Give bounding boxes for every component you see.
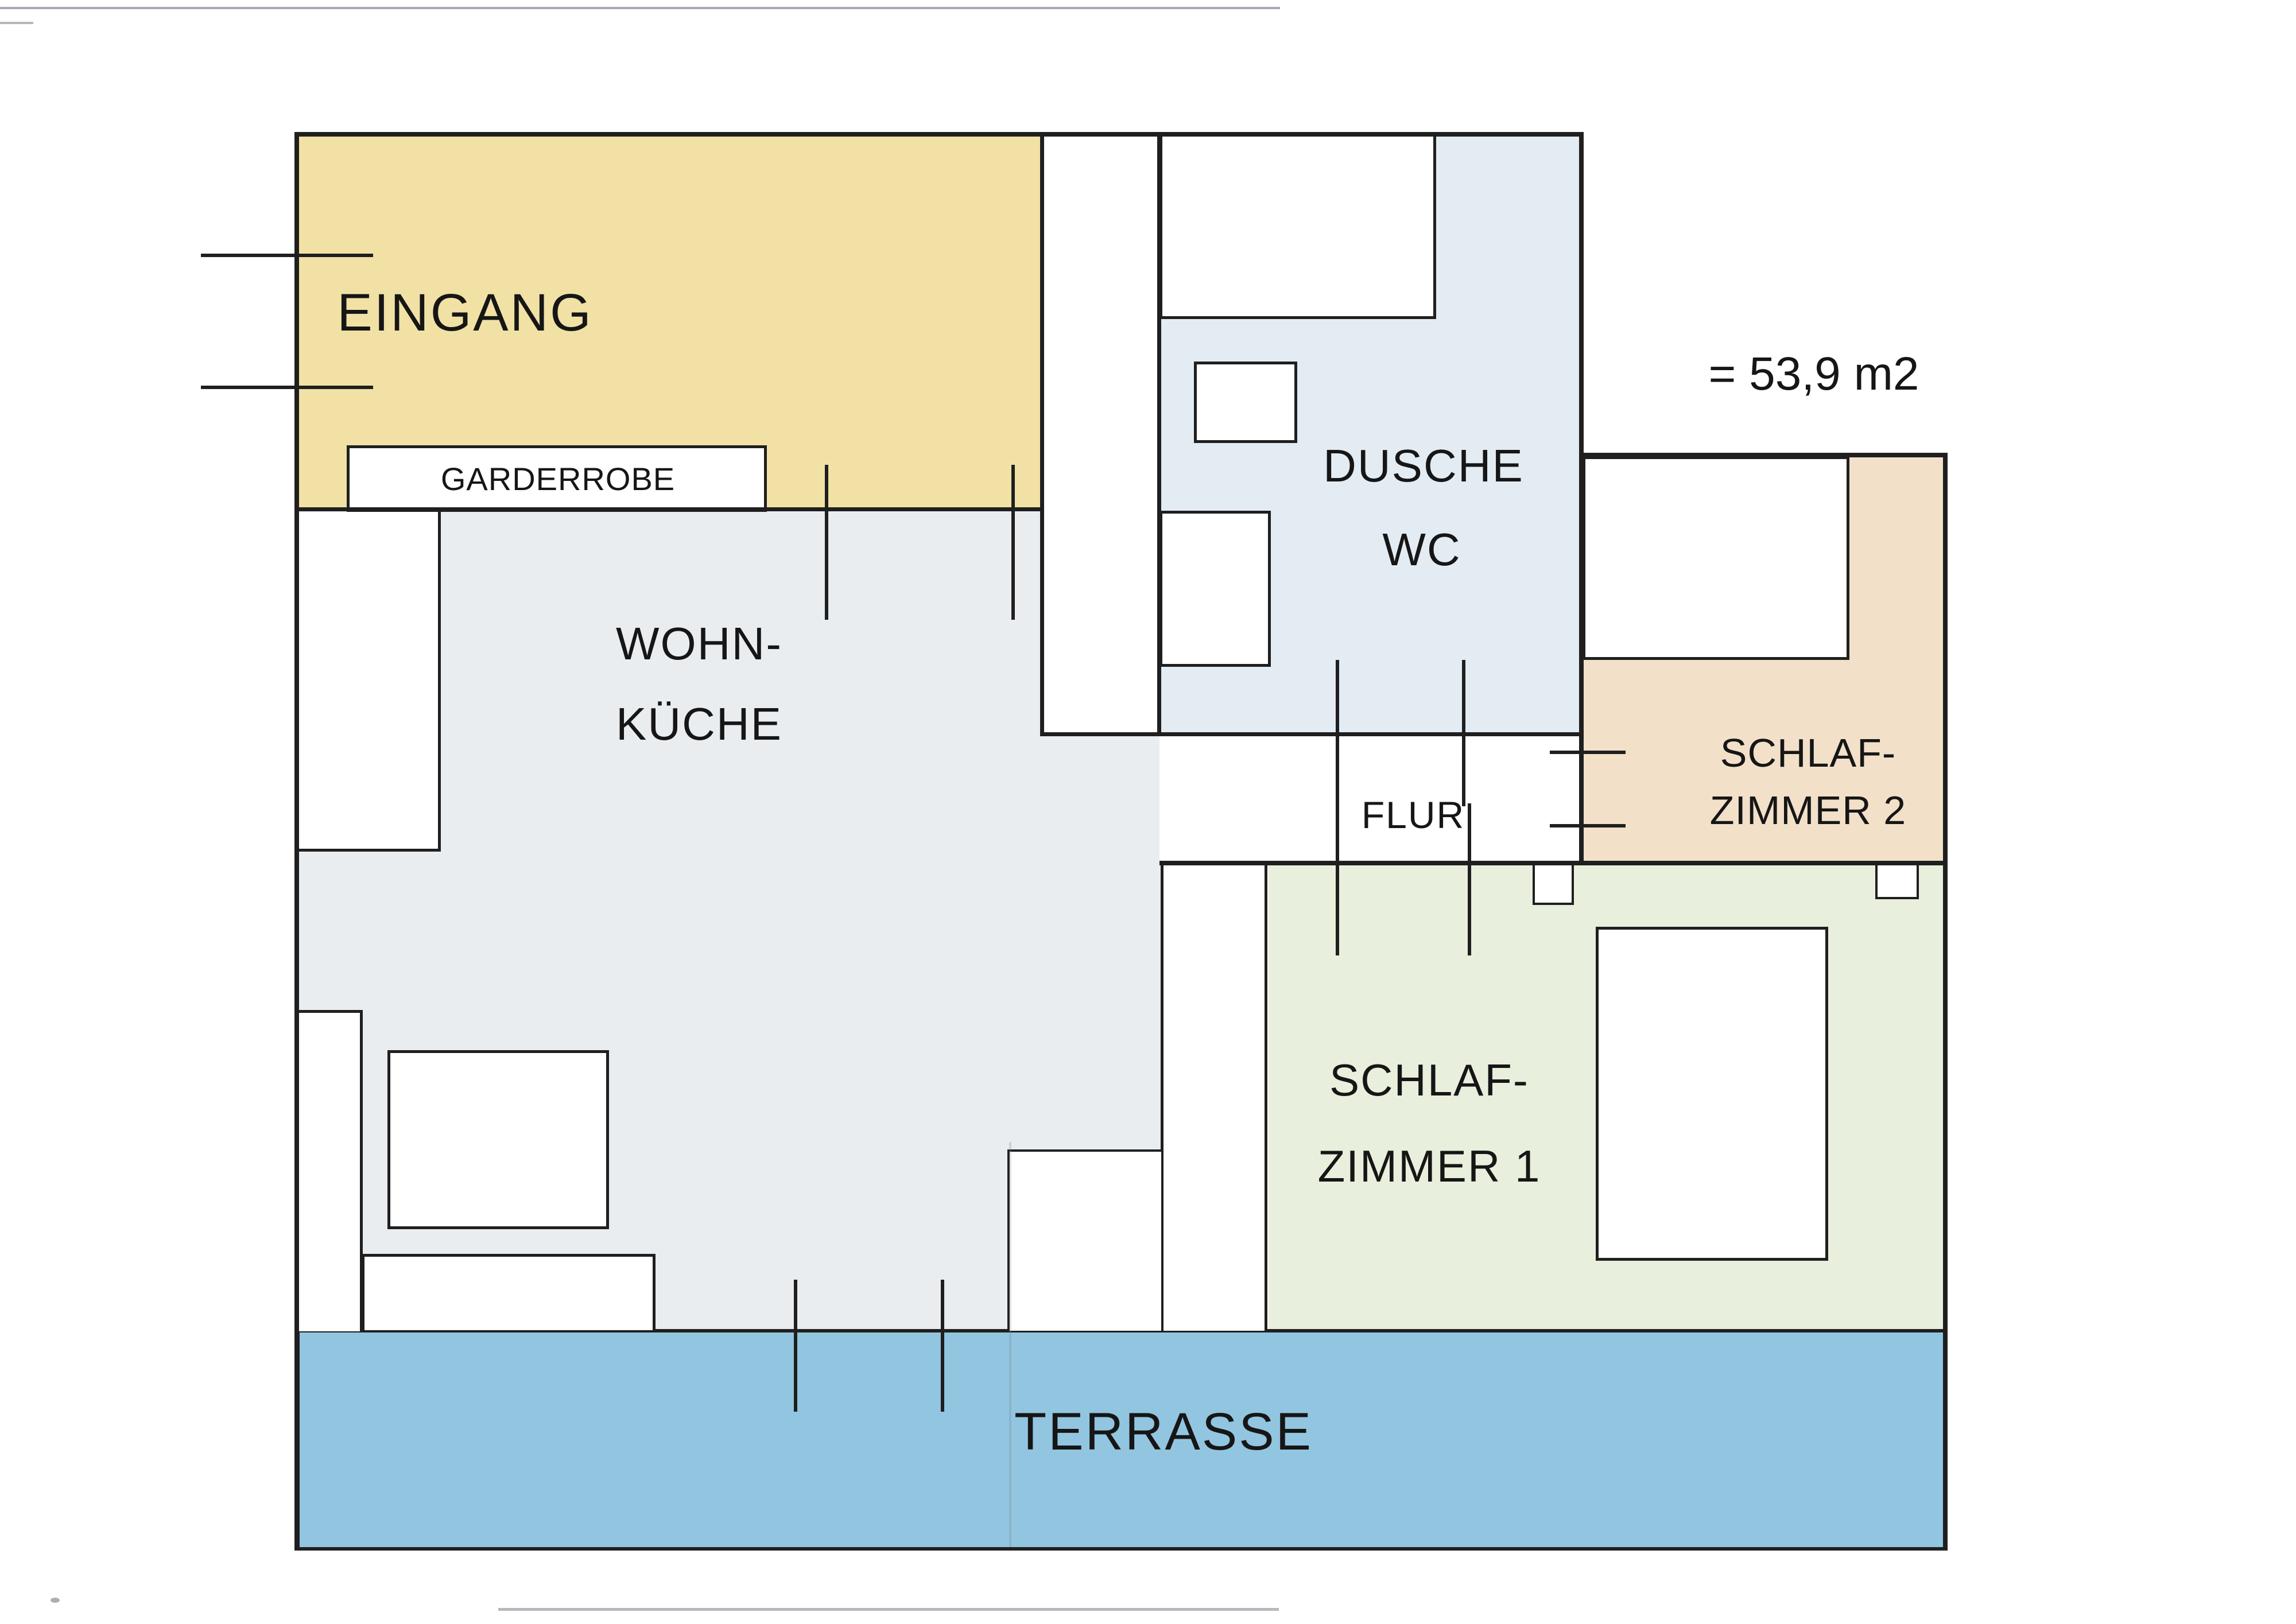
wall-right	[1943, 453, 1948, 1551]
door-marker-terrace-1	[794, 1280, 797, 1412]
label-garderobe: GARDERROBE	[441, 463, 675, 495]
label-dusche: DUSCHE	[1323, 443, 1524, 489]
label-wc: WC	[1382, 527, 1461, 573]
sink-fixture	[1194, 362, 1297, 443]
door-marker-terrace-2	[941, 1280, 944, 1412]
wall-niche-2	[1875, 864, 1919, 899]
floor-plan: EINGANG GARDERROBE DUSCHE WC = 53,9 m2 W…	[0, 0, 2296, 1624]
label-eingang: EINGANG	[337, 286, 592, 339]
wall-bathroom-right	[1579, 132, 1584, 865]
wall-left	[294, 132, 299, 1551]
label-schlafzimmer1-line1: SCHLAF-	[1329, 1058, 1529, 1102]
wardrobe-column	[1161, 865, 1267, 1331]
bedroom2-closet	[1583, 456, 1849, 660]
wall-top	[294, 132, 1584, 137]
label-schlafzimmer2-line2: ZIMMER 2	[1710, 790, 1906, 830]
shower-fixture	[1159, 132, 1436, 319]
wall-eingang-right	[1040, 132, 1044, 736]
scan-artifact-top-line	[0, 7, 1280, 9]
scan-artifact-fold-line	[1009, 1142, 1011, 1547]
wall-niche-1	[1533, 864, 1574, 905]
label-wohn: WOHN-	[616, 621, 782, 667]
bedroom1-bed	[1596, 927, 1828, 1261]
label-kueche: KÜCHE	[616, 701, 782, 747]
label-schlafzimmer2-line1: SCHLAF-	[1720, 733, 1896, 773]
toilet-fixture	[1159, 511, 1271, 667]
label-schlafzimmer1-line2: ZIMMER 1	[1318, 1144, 1541, 1188]
scan-artifact-bottom-line	[498, 1608, 1279, 1611]
label-flur: FLUR	[1362, 796, 1465, 834]
label-area-size: = 53,9 m2	[1709, 351, 1919, 398]
kitchen-recess	[1007, 1149, 1161, 1331]
door-marker-bedroom1-1	[1336, 803, 1339, 955]
wall-eingang-bottom	[294, 507, 1044, 511]
wall-bedroom2-top	[1581, 453, 1947, 457]
scan-artifact-dot	[51, 1598, 60, 1603]
door-marker-bedroom1-2	[1468, 803, 1471, 955]
door-marker-bedroom2-2	[1550, 824, 1626, 827]
wall-flur-top	[1042, 732, 1584, 736]
door-marker-eingang-2	[1011, 465, 1015, 620]
door-marker-bathroom-2	[1462, 660, 1465, 806]
living-room-table	[387, 1050, 609, 1229]
door-marker-eingang-1	[825, 465, 828, 620]
duct-shaft-area	[1042, 132, 1159, 735]
door-marker-bathroom-1	[1336, 660, 1339, 806]
wall-bathroom-left	[1157, 132, 1161, 736]
label-terrasse: TERRASSE	[1014, 1405, 1313, 1458]
window-marker-left-1	[201, 254, 373, 257]
door-marker-bedroom2-1	[1550, 751, 1626, 754]
wall-flur-bottom	[1159, 861, 1947, 865]
living-room-sideboard	[362, 1254, 656, 1330]
kitchen-counter	[297, 512, 441, 852]
window-marker-left-2	[201, 386, 373, 389]
living-room-sofa	[297, 1010, 363, 1331]
scan-artifact-top-line-2	[0, 22, 33, 24]
